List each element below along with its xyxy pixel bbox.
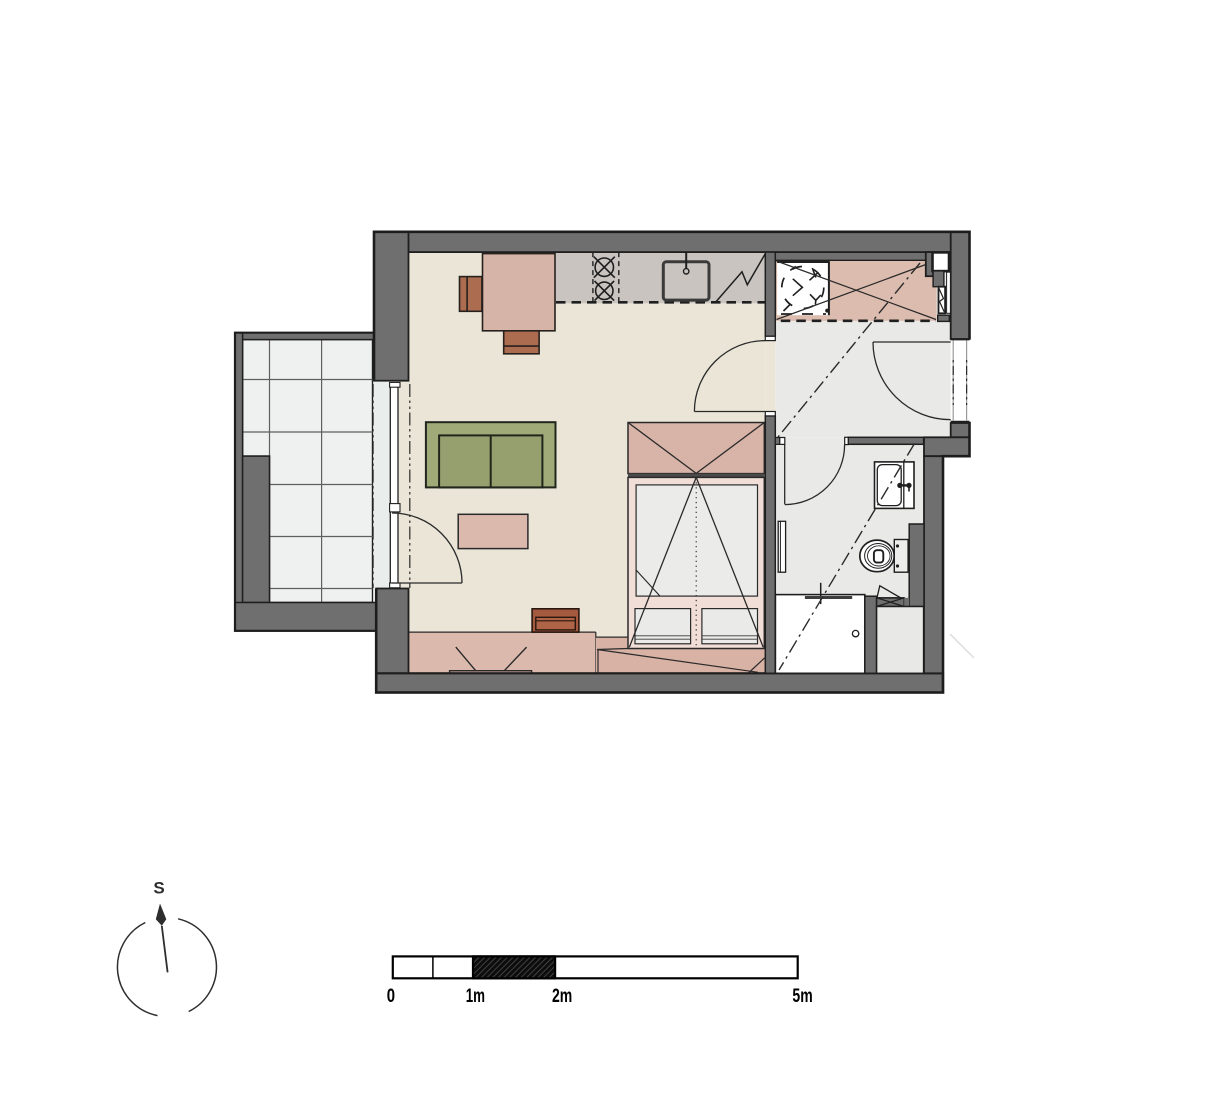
svg-text:0: 0 (387, 986, 395, 1007)
svg-text:1m: 1m (466, 986, 485, 1007)
svg-text:S: S (153, 879, 164, 898)
svg-text:2m: 2m (552, 986, 572, 1007)
svg-text:5m: 5m (792, 986, 812, 1007)
